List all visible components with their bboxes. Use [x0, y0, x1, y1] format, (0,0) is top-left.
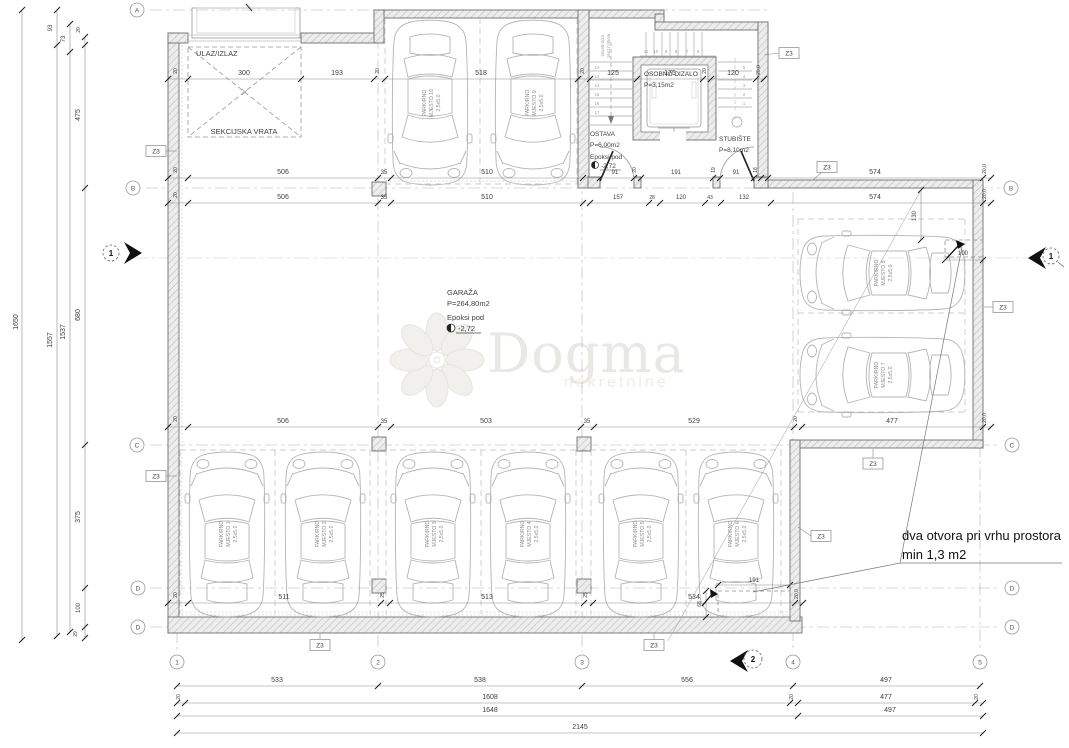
- stair-num: 2: [743, 92, 746, 97]
- wall-right: [973, 180, 983, 448]
- grid-label: 5: [978, 660, 982, 667]
- section-label: 1: [109, 249, 114, 258]
- stair-num: 13: [595, 74, 600, 79]
- dim-label: 533: [271, 677, 283, 684]
- sectional-door-label: SEKCIJSKA VRATA: [211, 127, 278, 136]
- dim-label: 475: [75, 109, 82, 121]
- dim-label: 100: [76, 602, 82, 613]
- parking-label: PARKIRNO: [525, 90, 531, 117]
- grid-label: 1: [175, 660, 179, 667]
- parking-label: 2,5x5,0: [329, 525, 335, 542]
- dim-label: 18: [753, 167, 759, 173]
- room-garage-floor: Epoksi pod: [447, 313, 484, 322]
- dim-label: 20: [580, 68, 586, 74]
- dim-label: 538: [474, 677, 486, 684]
- parking-label: MJESTO 5: [640, 521, 646, 546]
- room-garage-level: -2,72: [458, 324, 475, 333]
- dim-label: 91: [612, 170, 619, 176]
- dim-label: 497: [884, 707, 896, 714]
- parking-label: 2,5x5,0: [436, 94, 442, 111]
- dim-label: 175: [664, 70, 676, 77]
- wall-bottom: [168, 617, 802, 633]
- parking-label: 2,5x5,0: [742, 525, 748, 542]
- stair-num: 7: [686, 49, 689, 54]
- dim-label: 25: [380, 592, 386, 598]
- stair-riser-spec: 16x17,05cm: [606, 33, 611, 58]
- dim-label: 506: [277, 194, 289, 201]
- column: [372, 182, 386, 196]
- grid-bubble-row-d2-left: D: [131, 620, 145, 634]
- stair-num: 10: [654, 49, 659, 54]
- dim-label: 510: [481, 194, 493, 201]
- stair-num: 14: [595, 83, 600, 88]
- dim-label: 191: [749, 578, 760, 584]
- opening-arrow-2: [710, 589, 718, 598]
- dim-label: 73: [61, 35, 67, 42]
- grid-label: 2: [376, 660, 380, 667]
- parking-label: MJESTO 7: [881, 362, 887, 387]
- parking-label: MJESTO 1: [226, 521, 232, 546]
- zone-marker: Z3: [310, 633, 330, 651]
- dim-label: 20,0: [756, 65, 762, 75]
- zone-marker: Z3: [798, 527, 831, 542]
- room-storage-floor: Epoksi pod: [590, 154, 623, 161]
- dim-label: 20: [632, 167, 638, 173]
- column: [372, 579, 386, 593]
- dim-label: 20: [173, 192, 179, 198]
- zone-marker: Z3: [984, 302, 1013, 313]
- watermark-subtitle: nekretnine: [564, 374, 669, 391]
- room-staircase-area: P=8,10m2: [719, 147, 749, 154]
- room-storage-name: OSTAVA: [590, 131, 616, 138]
- dim-label: 120: [676, 195, 687, 201]
- grid-bubble-col-5: 5: [973, 655, 987, 669]
- grid-label: B: [131, 186, 135, 193]
- dim-label: 20: [173, 68, 179, 74]
- dim-label: 477: [886, 418, 898, 425]
- section-marker-1-right: 1: [1028, 247, 1064, 269]
- parking-label: PARKIRNO: [520, 521, 526, 548]
- stair-num: 9: [665, 49, 668, 54]
- dim-label: 680: [75, 309, 82, 321]
- grid-bubble-col-2: 2: [371, 655, 385, 669]
- dim-label: 20: [974, 694, 980, 700]
- parking-label: PARKIRNO: [874, 260, 880, 287]
- room-storage-level: -2,72: [601, 163, 616, 170]
- note-line-2: min 1,3 m2: [902, 547, 966, 562]
- watermark: Dogma nekretnine: [390, 313, 686, 407]
- room-storage-area: P=6,00m2: [590, 142, 620, 149]
- grid-label: B: [1009, 186, 1013, 193]
- zone-marker: Z3: [764, 48, 799, 59]
- stair-direction-arrow: [608, 116, 614, 124]
- dim-label: 513: [481, 594, 493, 601]
- stair-num: 5: [743, 65, 746, 70]
- dim-label: 20: [76, 27, 82, 33]
- dim-label: 132: [739, 195, 750, 201]
- dim-label: 503: [480, 418, 492, 425]
- zone-label: Z3: [785, 51, 793, 58]
- grid-bubble-row-b-left: B: [126, 181, 140, 195]
- grid-label: A: [135, 8, 140, 15]
- grid-bubble-row-d-right: D: [1005, 581, 1019, 595]
- zone-label: Z3: [650, 643, 658, 650]
- dim-label: 193: [331, 70, 343, 77]
- room-staircase-name: STUBIŠTE: [719, 134, 751, 143]
- stair-riser-spec: 16x30,0cm: [600, 35, 605, 57]
- dim-label: 20: [375, 68, 381, 74]
- section-marker-1-left: 1: [103, 242, 142, 264]
- entry-ramp: [188, 4, 301, 41]
- parking-label: MJESTO 3: [432, 521, 438, 546]
- dim-row-c: 20 506 35 503 35 529 20 477 20,0: [173, 413, 988, 425]
- dim-label: 20: [702, 68, 708, 74]
- parking-label: PARKIRNO: [219, 521, 225, 548]
- grid-bubble-col-4: 4: [786, 655, 800, 669]
- dim-label: 29: [73, 631, 79, 637]
- wall-stair-west: [578, 10, 589, 188]
- parking-label: PARKIRNO: [422, 90, 428, 117]
- dim-label: 1650: [13, 314, 20, 330]
- column: [372, 437, 386, 451]
- stair-num: 6: [697, 49, 700, 54]
- room-garage-name: GARAŽA: [447, 288, 478, 297]
- stall-lines: [180, 18, 965, 614]
- leader-line-opening-2: [753, 563, 900, 592]
- zone-marker: Z3: [813, 162, 837, 181]
- wall-stair-east: [758, 22, 768, 188]
- zone-label: Z3: [823, 165, 831, 172]
- dim-label: 43: [707, 195, 713, 201]
- grid-label: C: [1010, 443, 1015, 450]
- wall-stub-1: [588, 177, 600, 188]
- dim-label: 1608: [482, 694, 498, 701]
- grid-label: 3: [580, 660, 584, 667]
- section-label: 2: [751, 655, 756, 664]
- dim-label: 1537: [60, 324, 67, 340]
- dim-label: 497: [880, 677, 892, 684]
- parking-label: 2,5x5,0: [233, 525, 239, 542]
- stair-num: 11: [644, 49, 649, 54]
- floor-plan-canvas: Dogma nekretnine: [0, 0, 1069, 748]
- dim-label: 191: [671, 170, 682, 176]
- dim-label: 529: [688, 418, 700, 425]
- grid-label: 4: [791, 660, 795, 667]
- section-markers: 1 1 2: [103, 242, 1064, 672]
- dim-label: 100: [958, 251, 969, 257]
- room-elevator-area: P=3,15m2: [644, 82, 674, 89]
- grid-bubble-row-a: A: [130, 3, 144, 17]
- grid-bubble-row-b-right: B: [1004, 181, 1018, 195]
- grid-label: D: [1010, 586, 1015, 593]
- parking-label: PARKIRNO: [874, 362, 880, 389]
- dim-label: 35: [584, 419, 591, 425]
- dim-label: 25: [583, 592, 589, 598]
- parking-label: 2,5x5,0: [539, 94, 545, 111]
- grid-bubble-row-c-left: C: [130, 438, 144, 452]
- parking-label: 2,5x5,0: [888, 366, 894, 383]
- wall-rightbay-bottom: [790, 440, 983, 448]
- wall-bay-left: [374, 10, 384, 43]
- dim-label: 19: [711, 167, 717, 173]
- dim-left-chains: 1650 93 1557 73 1537 20 475 680 375 100 …: [13, 24, 82, 637]
- note-line-1: dva otvora pri vrhu prostora: [902, 528, 1062, 543]
- dim-label: 2145: [572, 724, 588, 731]
- parking-label: 2,5x5,0: [888, 264, 894, 281]
- stair-num: 17: [595, 110, 600, 115]
- opening-note: dva otvora pri vrhu prostora min 1,3 m2: [668, 192, 1062, 641]
- parking-label: MJESTO 10: [429, 89, 435, 117]
- column: [577, 579, 591, 593]
- parking-label: 2,5x5,0: [647, 525, 653, 542]
- dim-label: 574: [869, 169, 881, 176]
- elevator-door-gap: [660, 131, 686, 141]
- room-garage-area: P=264,80m2: [447, 299, 490, 308]
- dim-label: 20,0: [982, 164, 988, 174]
- stair-num: 1: [743, 101, 746, 106]
- parking-label: MJESTO 4: [527, 521, 533, 546]
- dim-label: 375: [75, 511, 82, 523]
- zone-label: Z3: [999, 305, 1007, 312]
- floor-plan-drawing: Dogma nekretnine: [0, 0, 1069, 748]
- stair-num: 16: [595, 101, 600, 106]
- dim-label: 120: [727, 70, 739, 77]
- dim-label: 574: [869, 194, 881, 201]
- parking-label: MJESTO 2: [322, 521, 328, 546]
- dim-label: 35: [381, 195, 388, 201]
- dim-label: 35: [381, 419, 388, 425]
- grid-label: C: [135, 443, 140, 450]
- column: [577, 437, 591, 451]
- dim-label: 28: [649, 195, 655, 201]
- dim-label: 20: [176, 694, 182, 700]
- grid-bubble-row-c-right: C: [1005, 438, 1019, 452]
- leader-line-opening-1: [900, 247, 962, 563]
- level-marker-icon: [592, 162, 596, 169]
- zone-label: Z3: [869, 461, 877, 468]
- dim-label: 300: [238, 70, 250, 77]
- cars: [185, 20, 965, 617]
- parking-label: PARKIRNO: [425, 521, 431, 548]
- dim-label: 20,0: [982, 413, 988, 423]
- dim-label: 510: [481, 169, 493, 176]
- stair-num: 4: [743, 74, 746, 79]
- dim-label: 506: [277, 169, 289, 176]
- grid-label: D: [136, 586, 141, 593]
- grid-label: D: [136, 625, 141, 632]
- zone-label: Z3: [817, 534, 825, 541]
- dim-bottom-chains: 533 538 556 497 20 1608 20 477 20 1648 4…: [176, 677, 980, 731]
- stair-num: 3: [743, 83, 746, 88]
- wall-stair-top: [655, 22, 768, 30]
- dim-label: 130: [912, 210, 918, 221]
- dim-label: 1557: [47, 332, 54, 348]
- wall-rightbay-top: [768, 180, 983, 188]
- ceiling-opening-2: [718, 591, 790, 617]
- sectional-door-zone: [188, 47, 301, 137]
- dim-label: 20,0: [982, 189, 988, 199]
- entry-label: ULAZ/IZLAZ: [196, 49, 238, 58]
- dim-label: 1648: [482, 707, 498, 714]
- dim-label: 20: [173, 592, 179, 598]
- dim-label: 556: [681, 677, 693, 684]
- dim-label: 20,0: [794, 589, 800, 599]
- zone-label: Z3: [152, 474, 160, 481]
- wall-left: [168, 33, 179, 633]
- grid-bubble-col-1: 1: [170, 655, 184, 669]
- grid-bubble-row-d2-right: D: [1005, 620, 1019, 634]
- zone-marker: Z3: [644, 633, 664, 651]
- stair-num: 8: [675, 49, 678, 54]
- parking-label: 2,5x5,0: [439, 525, 445, 542]
- dim-right: 130 100: [912, 210, 969, 257]
- stair-num: 12: [595, 65, 600, 70]
- dim-label: 35: [381, 170, 388, 176]
- dim-label: 91: [733, 170, 740, 176]
- dim-label: 20: [173, 416, 179, 422]
- grid-bubble-row-d-left: D: [131, 581, 145, 595]
- dim-label: 506: [277, 418, 289, 425]
- grid-bubble-col-3: 3: [575, 655, 589, 669]
- zone-label: Z3: [152, 149, 160, 156]
- wall-top-bay: [374, 10, 664, 18]
- wall-top-entry: [301, 33, 375, 43]
- parking-label: PARKIRNO: [633, 521, 639, 548]
- dim-label: 157: [613, 195, 624, 201]
- dim-label: 477: [880, 694, 892, 701]
- dim-label: 518: [475, 70, 487, 77]
- dim-label: 511: [278, 594, 289, 601]
- dim-label: 125: [607, 70, 619, 77]
- parking-label: MJESTO 6: [735, 521, 741, 546]
- zone-label: Z3: [316, 643, 324, 650]
- stair-num: 15: [595, 92, 600, 97]
- dim-label: 93: [48, 24, 54, 31]
- wall-entry-stub: [168, 33, 188, 43]
- parking-label: 2,5x5,0: [534, 525, 540, 542]
- parking-label: MJESTO 8: [881, 260, 887, 285]
- parking-label: MJESTO 9: [532, 90, 538, 115]
- section-label: 1: [1049, 252, 1054, 261]
- zone-marker: Z3: [863, 449, 883, 469]
- parking-label: PARKIRNO: [315, 521, 321, 548]
- dim-label: 20: [789, 694, 795, 700]
- dim-label: 20: [173, 167, 179, 173]
- grid-label: D: [1010, 625, 1015, 632]
- section-marker-2-bottom: 2: [730, 650, 762, 672]
- door-leaf-stairs: [741, 151, 754, 181]
- dim-row-b2: 20 506 35 510 157 28 120 43 132 574 20,0: [173, 189, 988, 201]
